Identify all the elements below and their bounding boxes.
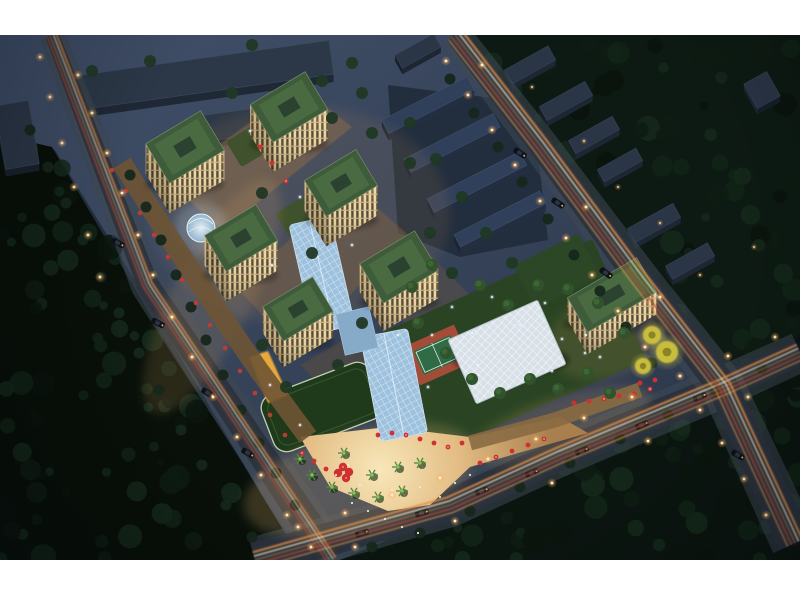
page [0, 0, 800, 600]
vignette [0, 35, 800, 560]
rendering-svg [0, 35, 800, 560]
scene-canvas [0, 35, 800, 560]
